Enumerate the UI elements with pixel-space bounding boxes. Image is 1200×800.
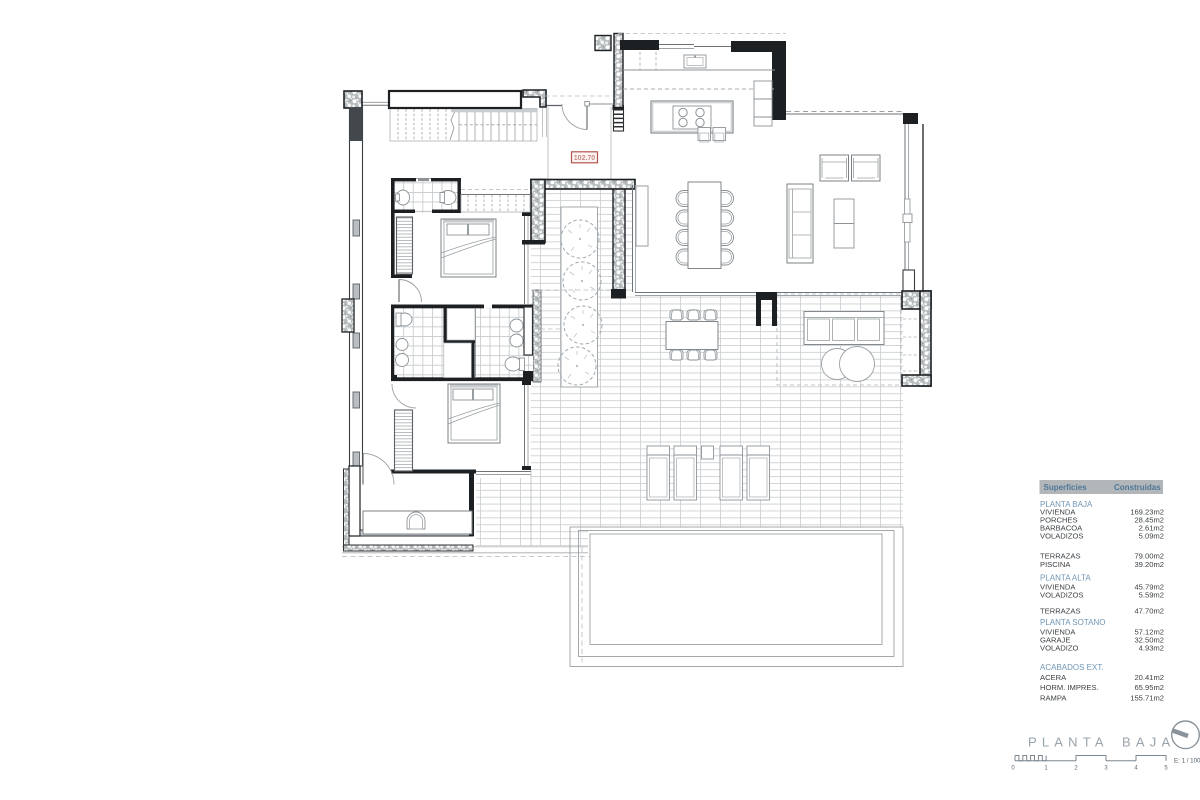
svg-text:PLANTA SOTANO: PLANTA SOTANO (1040, 618, 1106, 627)
svg-text:Construidas: Construidas (1114, 483, 1161, 492)
svg-text:VOLADIZOS: VOLADIZOS (1040, 531, 1083, 540)
svg-text:PLANTA: PLANTA (1028, 735, 1109, 750)
svg-text:47.70m2: 47.70m2 (1134, 607, 1164, 616)
svg-text:E: 1 / 100: E: 1 / 100 (1174, 758, 1200, 765)
svg-text:Superficies: Superficies (1044, 483, 1088, 492)
svg-text:PISCINA: PISCINA (1040, 560, 1071, 569)
svg-text:5.59m2: 5.59m2 (1139, 590, 1164, 599)
svg-text:ACERA: ACERA (1040, 673, 1067, 682)
svg-text:155.71m2: 155.71m2 (1130, 694, 1164, 703)
svg-text:39.20m2: 39.20m2 (1134, 560, 1164, 569)
svg-text:ACABADOS EXT.: ACABADOS EXT. (1040, 663, 1104, 672)
svg-text:TERRAZAS: TERRAZAS (1040, 607, 1081, 616)
svg-text:5.09m2: 5.09m2 (1139, 531, 1164, 540)
svg-text:102.70: 102.70 (574, 155, 596, 162)
svg-text:HORM. IMPRES.: HORM. IMPRES. (1040, 683, 1099, 692)
svg-text:VOLADIZO: VOLADIZO (1040, 644, 1078, 653)
svg-text:RAMPA: RAMPA (1040, 694, 1067, 703)
svg-text:PLANTA ALTA: PLANTA ALTA (1040, 573, 1091, 582)
svg-text:BAJA: BAJA (1122, 735, 1175, 750)
svg-text:4.93m2: 4.93m2 (1139, 644, 1164, 653)
svg-text:20.41m2: 20.41m2 (1134, 673, 1164, 682)
svg-text:VOLADIZOS: VOLADIZOS (1040, 590, 1083, 599)
svg-text:65.95m2: 65.95m2 (1134, 683, 1164, 692)
